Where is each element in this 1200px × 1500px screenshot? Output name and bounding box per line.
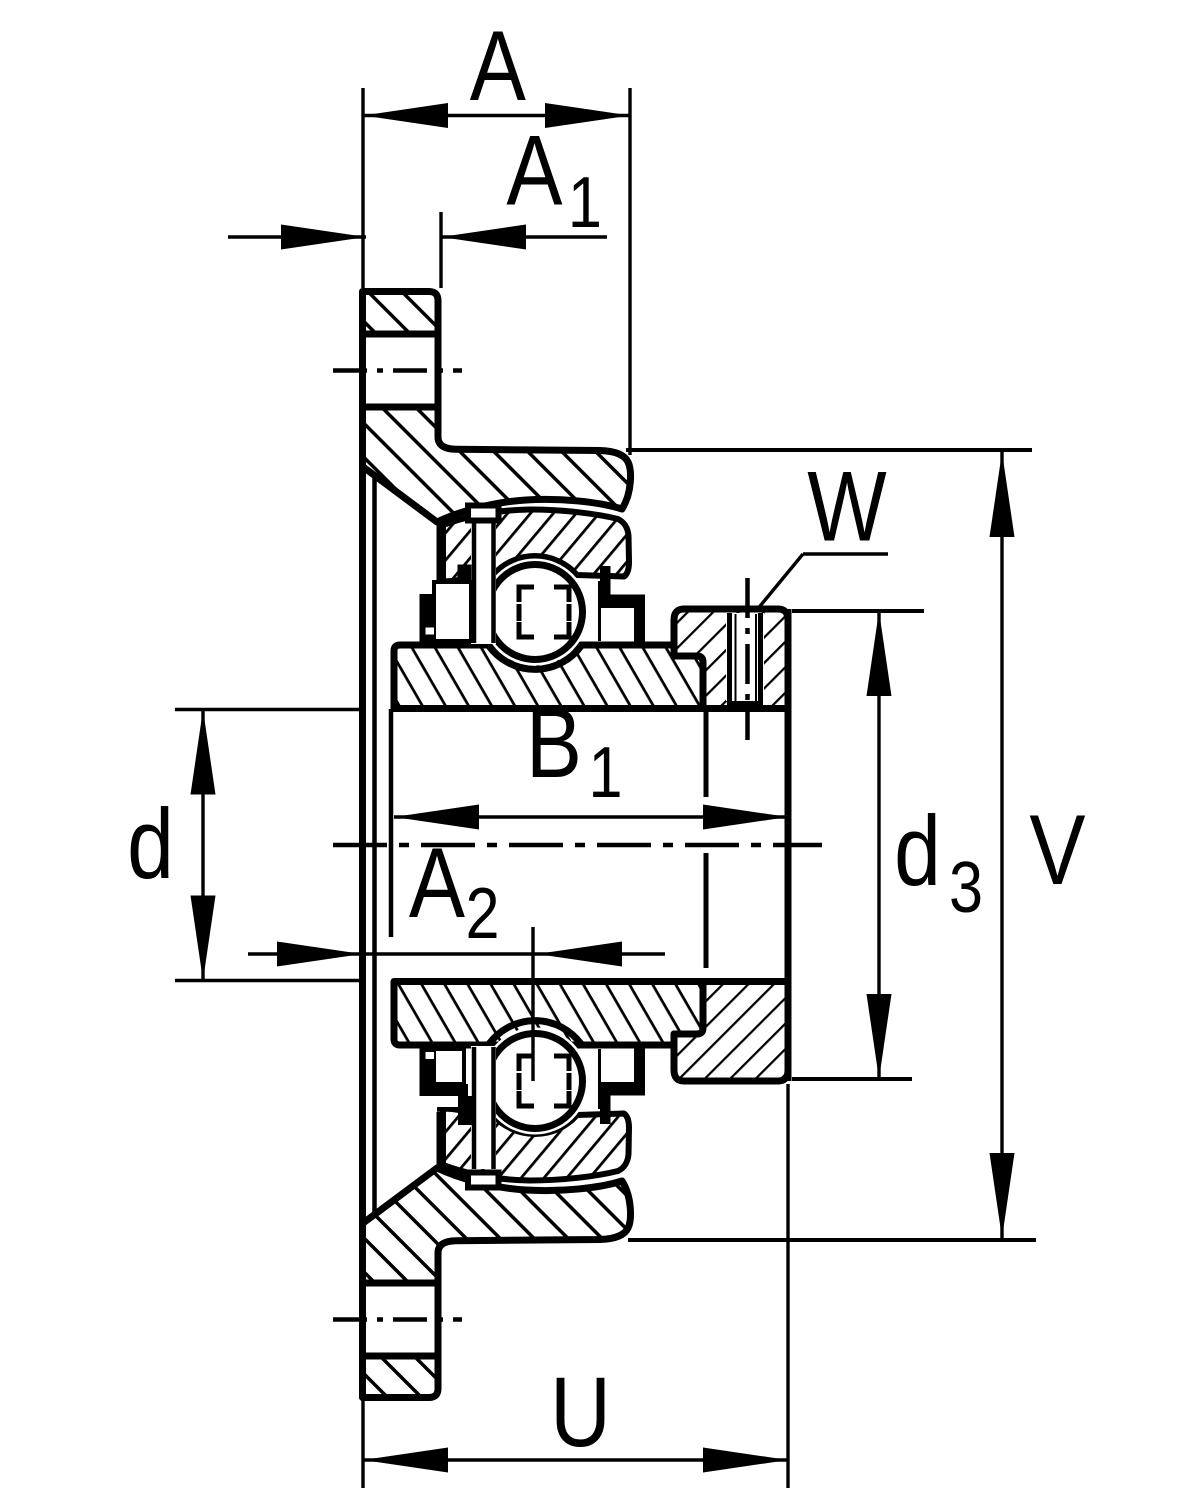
- svg-text:V: V: [1029, 796, 1085, 906]
- svg-text:A: A: [470, 12, 527, 122]
- svg-text:d: d: [127, 790, 174, 900]
- svg-text:A: A: [409, 829, 466, 939]
- svg-text:3: 3: [949, 848, 983, 928]
- svg-text:1: 1: [568, 163, 602, 243]
- svg-text:2: 2: [465, 874, 499, 954]
- svg-text:U: U: [550, 1358, 611, 1468]
- svg-text:B: B: [526, 689, 582, 799]
- svg-text:W: W: [807, 452, 887, 562]
- svg-text:1: 1: [588, 733, 622, 813]
- svg-text:d: d: [894, 797, 941, 907]
- svg-text:A: A: [506, 116, 563, 226]
